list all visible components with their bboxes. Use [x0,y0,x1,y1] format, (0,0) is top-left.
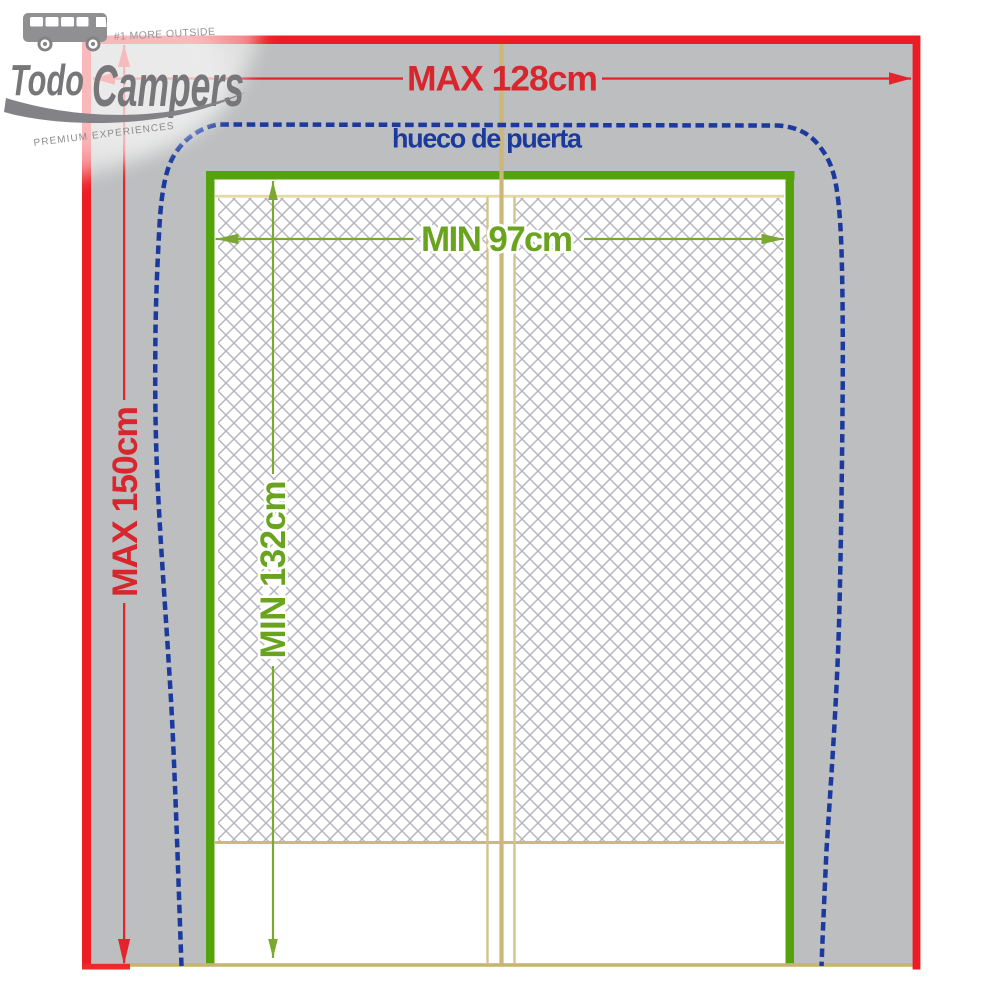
svg-text:MIN 97cm: MIN 97cm [421,220,573,259]
svg-text:Campers: Campers [92,54,244,119]
svg-text:hueco de puerta: hueco de puerta [392,124,583,154]
svg-text:MAX 150cm: MAX 150cm [105,406,145,597]
svg-text:Todo: Todo [10,56,84,105]
svg-text:MAX 128cm: MAX 128cm [407,59,598,99]
svg-text:MIN 132cm: MIN 132cm [254,481,293,659]
